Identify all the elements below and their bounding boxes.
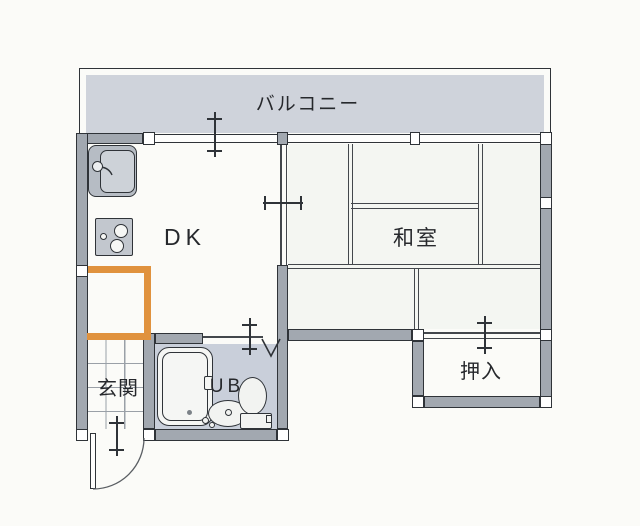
dimension-marker xyxy=(263,202,303,204)
washbasin-drain-icon xyxy=(225,409,232,416)
dimension-marker xyxy=(116,416,118,456)
toilet-button-icon xyxy=(266,415,272,423)
bathtub-drain-icon xyxy=(187,410,192,415)
sink-faucet-icon xyxy=(92,161,103,172)
plan-line-art xyxy=(0,0,640,526)
dimension-marker xyxy=(249,318,251,355)
dk-label: DK xyxy=(150,222,220,252)
japanese-room-label: 和室 xyxy=(380,224,452,250)
dimension-marker xyxy=(214,112,216,157)
stove-burner-icon xyxy=(100,233,107,240)
closet-label: 押入 xyxy=(457,357,505,381)
stove-burner-icon xyxy=(114,224,128,238)
drain-dot-icon xyxy=(202,417,209,424)
entrance-label: 玄関 xyxy=(92,374,144,398)
dimension-marker xyxy=(484,316,486,354)
floor-plan: バルコニー xyxy=(0,0,640,526)
unit-bath-label: UB xyxy=(205,376,249,398)
drain-dot-icon xyxy=(209,422,215,428)
entry-door-swing-icon xyxy=(93,438,144,489)
stove-burner-icon xyxy=(110,239,124,253)
balcony-label: バルコニー xyxy=(228,90,388,114)
folding-door-icon xyxy=(262,339,280,356)
